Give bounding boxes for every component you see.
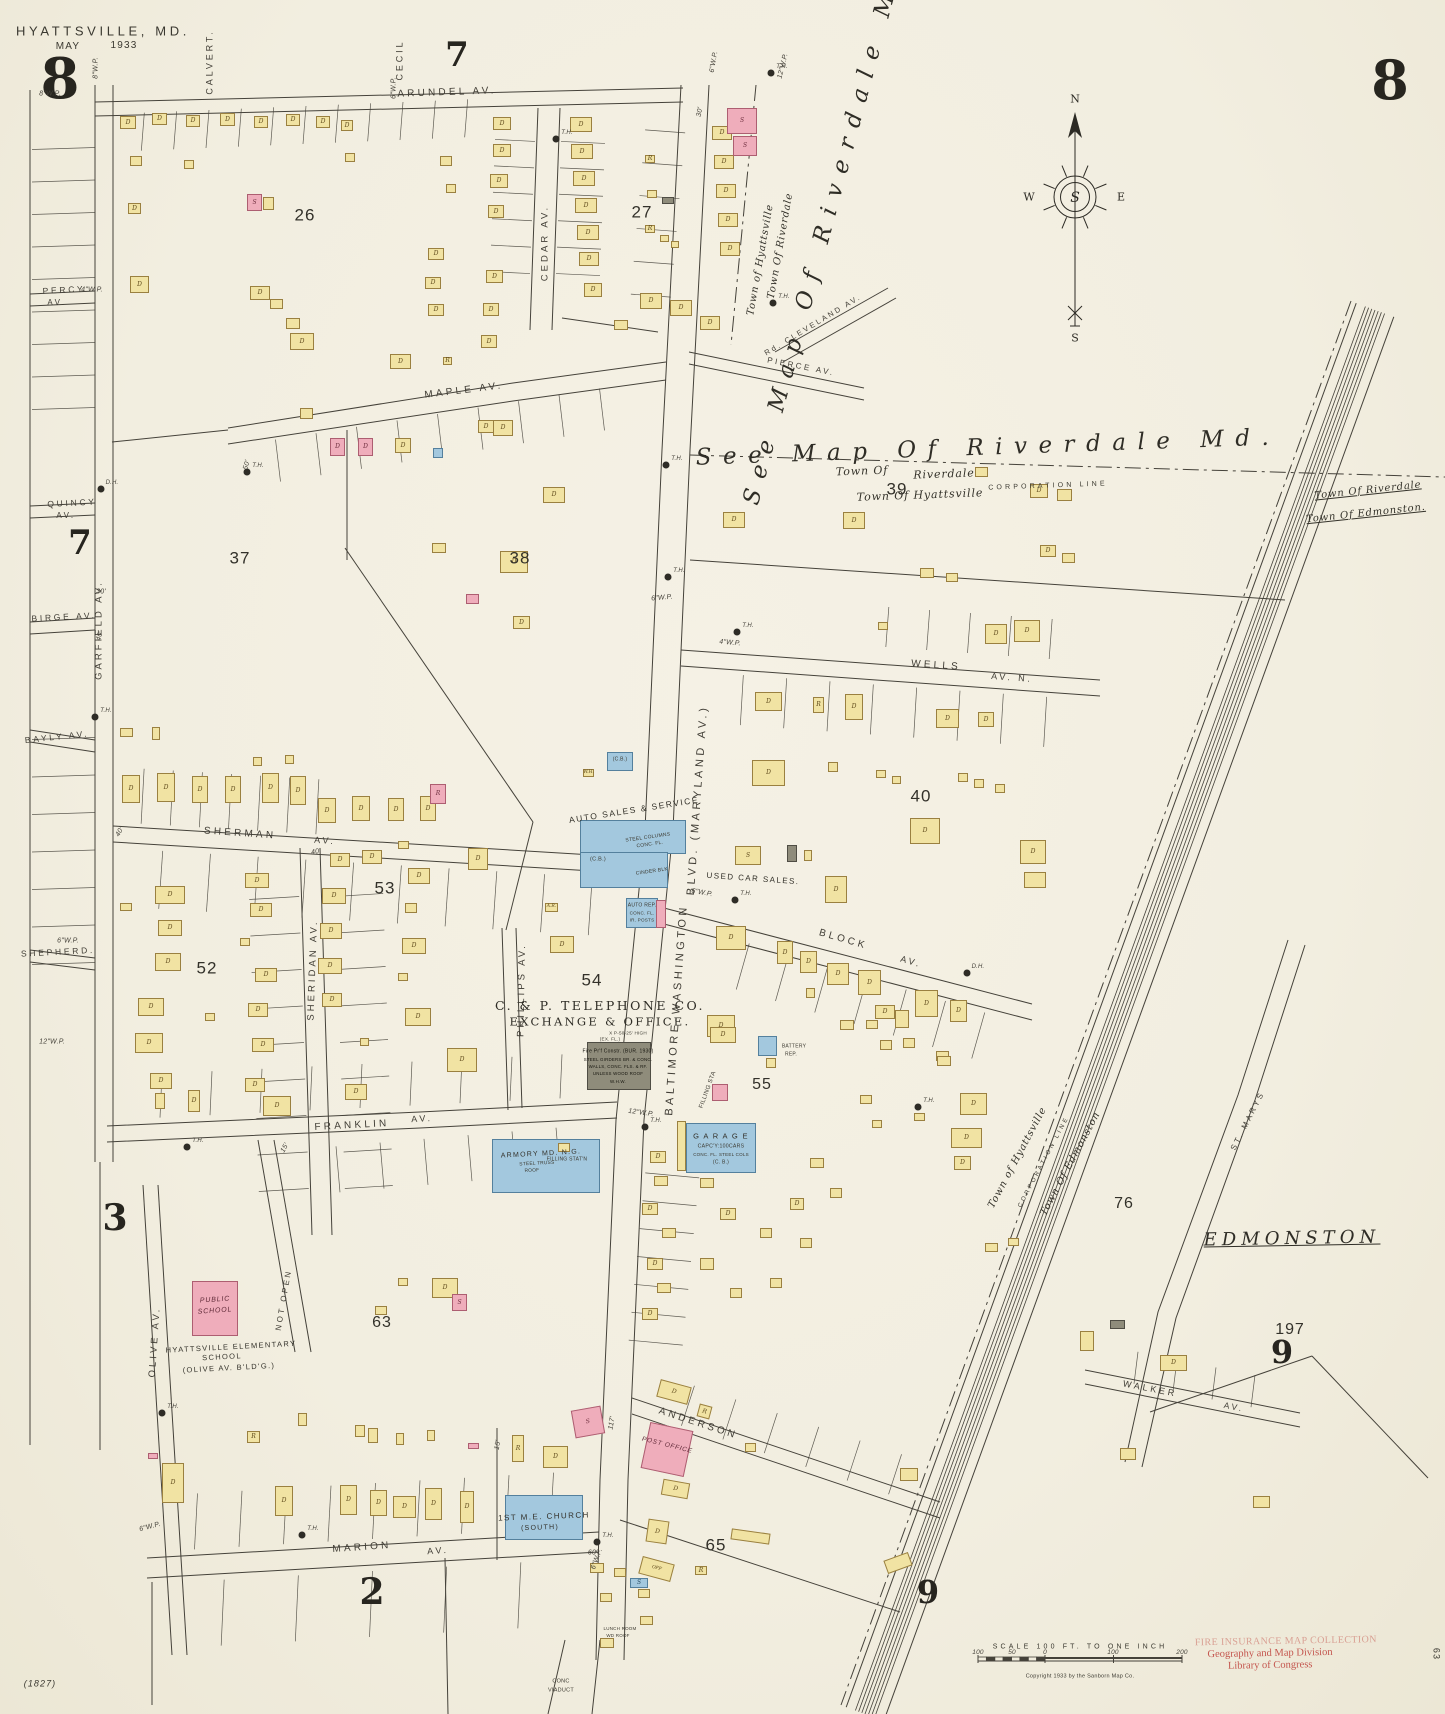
hydrant-label: T.H.: [778, 294, 790, 300]
hydrant-label: T.H.: [602, 1533, 614, 1539]
map-annotation: LUNCH ROOM: [603, 1627, 636, 1632]
water-pipe-note: 8"W.P.: [93, 57, 100, 79]
sheet-number: 8: [1371, 53, 1409, 107]
street-label: AV.: [1223, 1401, 1245, 1413]
map-annotation: 1933: [110, 41, 137, 51]
sheet-number: 3: [102, 1200, 127, 1236]
street-label: BAYLY AV.: [24, 729, 89, 744]
street-label: OLIVE AV.: [148, 1306, 162, 1378]
hydrant-label: T.H.: [650, 1118, 662, 1124]
map-annotation: REP.: [785, 1053, 797, 1058]
sanborn-map-sheet: S DDDDDDDDDSDDDDRDDDDDDDDDDDDDDDDDDDDDDR…: [0, 0, 1445, 1714]
street-label: QUINCY: [47, 497, 97, 508]
map-annotation: CONC. FL.: [630, 912, 655, 917]
hydrant-label: T.H.: [742, 623, 754, 629]
street-label: AV.: [411, 1114, 433, 1124]
street-label: WALKER: [1122, 1379, 1178, 1398]
map-annotation: CONC: [552, 1679, 569, 1685]
hydrant-label: T.H.: [252, 463, 264, 469]
water-pipe-note: 6"W.P.: [709, 51, 720, 74]
street-label: AV.: [47, 299, 66, 307]
hydrant-dot: [159, 1410, 166, 1417]
map-annotation: EXCHANGE & OFFICE.: [510, 1016, 691, 1028]
map-annotation: W.H.W.: [610, 1080, 626, 1084]
hydrant-label: T.H.: [776, 64, 788, 70]
water-pipe-note: 30': [96, 589, 106, 596]
map-annotation: SCHOOL: [197, 1306, 232, 1315]
map-annotation: CAPC'Y:100CARS: [698, 1144, 745, 1149]
block-number: 55: [752, 1077, 772, 1093]
map-annotation: PUBLIC: [200, 1295, 231, 1304]
map-annotation: Town Of Riverdale: [1314, 480, 1422, 501]
map-annotation: (C.B.): [613, 758, 628, 763]
map-annotation: FILLING STA: [699, 1071, 718, 1110]
block-number: 26: [295, 207, 316, 224]
map-annotation: HYATTSVILLE, MD.: [16, 25, 190, 38]
hydrant-label: T.H.: [671, 456, 683, 462]
water-pipe-note: 6"W.P.: [651, 594, 673, 603]
hydrant-label: D.H.: [106, 480, 119, 486]
map-annotation: VIADUCT: [548, 1688, 574, 1694]
hydrant-label: T.H.: [561, 130, 573, 136]
hydrant-dot: [734, 629, 741, 636]
hydrant-dot: [915, 1104, 922, 1111]
compass-point-letter: S: [1071, 333, 1079, 344]
hydrant-dot: [770, 300, 777, 307]
street-label: AV.: [899, 955, 922, 970]
block-number: 27: [632, 204, 653, 221]
water-pipe-note: 6"W.P.: [57, 938, 79, 945]
scale-tick-label: 100: [972, 1650, 983, 1657]
street-label: AV. N.: [991, 672, 1033, 684]
street-label: PERCY: [42, 285, 85, 296]
map-annotation: (SOUTH): [521, 1524, 559, 1532]
map-annotation: CINDER BLK: [636, 867, 669, 876]
map-annotation: (C. B.): [713, 1161, 729, 1166]
street-label: AV.: [56, 512, 75, 520]
scale-tick-label: 0: [1043, 1650, 1047, 1657]
scale-tick-label: 200: [1176, 1650, 1187, 1657]
street-label: ARUNDEL AV.: [397, 86, 497, 99]
water-pipe-note: 40': [311, 848, 322, 857]
hydrant-label: T.H.: [923, 1098, 935, 1104]
map-annotation: (1827): [24, 1680, 57, 1689]
map-annotation: SCHOOL: [202, 1352, 242, 1362]
sheet-number: 7: [445, 38, 469, 72]
map-annotation: STEEL GIRDERS BR. & CONC.: [584, 1058, 653, 1062]
scale-tick-label: 100: [1107, 1650, 1118, 1657]
block-number: 63: [372, 1315, 392, 1331]
water-pipe-note: 6"W.P.: [139, 1521, 162, 1533]
map-annotation: UNLESS WOOD ROOF: [593, 1072, 643, 1076]
compass-point-letter: W: [1023, 192, 1034, 203]
map-annotation: (EX. FL.): [600, 1038, 620, 1043]
hydrant-dot: [299, 1532, 306, 1539]
hydrant-label: T.H.: [740, 891, 752, 897]
map-annotation: 63: [1432, 1648, 1441, 1660]
street-label: MARION: [332, 1541, 392, 1555]
block-number: 53: [375, 880, 396, 897]
block-number: 38: [510, 550, 531, 567]
map-annotation: G A R A G E: [693, 1132, 749, 1140]
street-label: CALVERT.: [206, 29, 215, 94]
scale-tick-label: 50: [1008, 1650, 1016, 1657]
map-annotation: X P-50-25' HIGH: [609, 1032, 647, 1037]
street-label: MAPLE AV.: [424, 381, 504, 401]
hydrant-dot: [665, 574, 672, 581]
library-of-congress-stamp: FIRE INSURANCE MAP COLLECTION Geography …: [1195, 1635, 1346, 1673]
map-annotation: C. & P. TELEPHONE CO.: [495, 1000, 705, 1013]
street-label: WELLS: [911, 659, 961, 672]
hydrant-label: T.H.: [307, 1526, 319, 1532]
sheet-number: 8: [41, 51, 80, 107]
map-annotation: BATTERY: [782, 1045, 806, 1050]
map-annotation: Town Of Edmonston.: [1306, 503, 1426, 525]
map-annotation: WD ROOF: [606, 1634, 629, 1639]
hydrant-label: T.H.: [192, 1138, 204, 1144]
water-pipe-note: 6"W.P.: [691, 888, 714, 899]
sheet-number: 9: [1271, 1336, 1293, 1368]
hydrant-dot: [553, 136, 560, 143]
sheet-number: 7: [68, 526, 92, 560]
water-pipe-note: 4"W.P.: [81, 287, 103, 294]
map-annotation: 1ST M.E. CHURCH: [498, 1511, 590, 1522]
block-number: 39: [887, 481, 908, 498]
hydrant-dot: [663, 462, 670, 469]
street-label: FRANKLIN: [314, 1119, 389, 1133]
labels-layer: ARUNDEL AV.CALVERT.CECILCEDAR AV.MAPLE A…: [0, 0, 1445, 1714]
hydrant-dot: [642, 1124, 649, 1131]
block-number: 54: [582, 972, 603, 989]
hydrant-label: T.H.: [673, 568, 685, 574]
street-label: SHEPHERD.: [21, 946, 95, 958]
map-annotation: Riverdale: [913, 467, 975, 480]
street-label: AV.: [314, 836, 336, 846]
block-number: 37: [230, 550, 251, 567]
water-pipe-note: 117': [607, 1416, 616, 1430]
map-annotation: CORPORATION LINE: [988, 480, 1108, 491]
street-label: SHERIDAN AV.: [306, 919, 319, 1021]
map-annotation: Town Of Edmonston: [1039, 1110, 1102, 1217]
hydrant-dot: [732, 897, 739, 904]
block-number: 52: [197, 960, 218, 977]
hydrant-dot: [594, 1539, 601, 1546]
street-label: CECIL: [396, 40, 405, 81]
map-annotation: ROOF: [524, 1169, 539, 1175]
map-annotation: FILLING STAT'N: [547, 1158, 587, 1163]
compass-point-letter: N: [1070, 94, 1080, 105]
hydrant-label: D.H.: [972, 964, 985, 970]
scale-copyright: Copyright 1933 by the Sanborn Map Co.: [1026, 1674, 1135, 1680]
water-pipe-note: 15': [280, 1142, 291, 1154]
hydrant-label: T.H.: [167, 1404, 179, 1410]
street-label: NOT OPEN: [275, 1269, 294, 1332]
water-pipe-note: 8"W.P.: [39, 91, 61, 98]
street-label: ST. MARYS: [1230, 1090, 1267, 1152]
block-number: 65: [706, 1537, 727, 1554]
water-pipe-note: 12"W.P.: [39, 1039, 65, 1046]
map-annotation: Town of Hyattsville: [987, 1106, 1049, 1210]
hydrant-dot: [184, 1144, 191, 1151]
map-annotation: Fire Pr'f Constr. (BUR. 1930): [583, 1050, 654, 1055]
map-annotation: POST OFFICE: [641, 1437, 693, 1456]
map-annotation: (C.B.): [590, 857, 606, 863]
hydrant-dot: [244, 469, 251, 476]
water-pipe-note: 60: [588, 1550, 596, 1557]
compass-point-letter: E: [1117, 192, 1125, 203]
water-pipe-note: 4"W.P.: [719, 639, 741, 648]
map-annotation: EDMONSTON: [1203, 1228, 1380, 1249]
water-pipe-note: 15': [494, 1440, 503, 1451]
sheet-number: 9: [917, 1576, 939, 1608]
map-annotation: Town Of Hyattsville: [857, 487, 984, 502]
water-pipe-note: 30': [696, 107, 705, 118]
map-annotation: Town Of: [836, 465, 889, 478]
hydrant-dot: [98, 486, 105, 493]
street-label: BIRGE AV.: [31, 611, 96, 623]
water-pipe-note: 40': [115, 826, 126, 838]
map-annotation: AUTO SALES & SERVICE: [568, 796, 699, 825]
water-pipe-note: 6"W.P.: [391, 77, 398, 99]
street-label: BLOCK: [818, 928, 869, 951]
block-number: 76: [1114, 1196, 1134, 1212]
block-number: 40: [911, 788, 932, 805]
street-label: AV.: [427, 1546, 449, 1556]
street-label: ANDERSON: [657, 1407, 738, 1442]
hydrant-dot: [92, 714, 99, 721]
hydrant-label: T.H.: [100, 708, 112, 714]
street-label: CEDAR AV.: [540, 205, 550, 281]
map-annotation: CONC. FL. STEEL COLS: [693, 1153, 749, 1158]
sheet-number: 2: [359, 1574, 384, 1610]
map-annotation: AUTO REP.: [628, 904, 656, 909]
hydrant-dot: [964, 970, 971, 977]
map-annotation: (OLIVE AV. B'LD'G.): [183, 1362, 276, 1374]
map-annotation: WALLS, CONC. FLS. & RF.: [589, 1065, 648, 1069]
map-annotation: IR. POSTS: [630, 919, 655, 924]
street-label: SHERMAN: [204, 826, 277, 841]
hydrant-dot: [768, 70, 775, 77]
water-pipe-note: 12"W.P.: [628, 1108, 654, 1119]
map-annotation: USED CAR SALES.: [706, 872, 800, 886]
map-annotation: CONC. FL.: [636, 841, 663, 850]
scale-title: SCALE 100 FT. TO ONE INCH: [993, 1644, 1168, 1651]
